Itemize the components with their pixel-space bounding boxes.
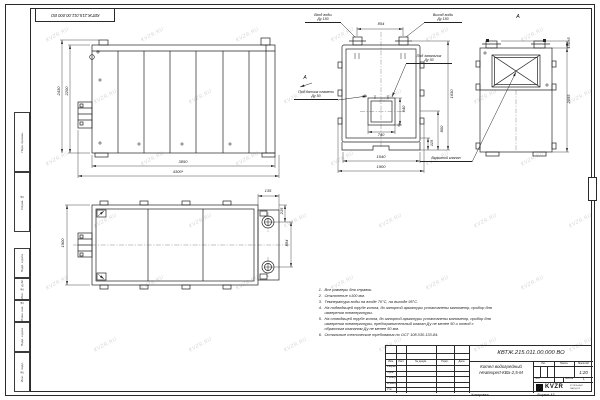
kvzr-logo: KVZR КОТЕЛЬНЫЙ ЗАВОД РФ — [536, 384, 591, 392]
margin-box-perv-primen: Перв. примен. — [14, 112, 30, 172]
format-label: Формат А3 — [518, 394, 574, 397]
outlet-label: Выход воды Ду 150 — [424, 13, 462, 23]
note-4: 4.На подводящей трубе котла, до запорной… — [315, 305, 493, 315]
dim-front-total-width: 4300* — [145, 170, 211, 174]
dim-section-opening-width: 740 — [368, 133, 394, 137]
dim-front-total-height: 2430 — [57, 76, 61, 106]
note-6: 6.Остальные технические требования по ОС… — [315, 332, 493, 337]
front-body-outline — [78, 38, 275, 157]
note-1: 1.Все размеры для справок. — [315, 287, 493, 292]
dim-section-opening-height: 540 — [402, 94, 406, 124]
note-2: 2.Отклонение ±100 мм. — [315, 293, 493, 298]
plan-centerline — [73, 212, 290, 277]
dim-section-total-width: 1900 — [366, 165, 396, 169]
dim-view-a-height: 2055 — [567, 84, 571, 114]
sheets-label: Листов — [565, 378, 573, 381]
dim-plan-pipe-spacing: 854 — [285, 228, 289, 258]
row-dev: Разраб. — [387, 366, 397, 369]
row-approve: Утв. — [387, 389, 392, 392]
flame-sensor-label: Под датчик пламени Ду 50 — [294, 90, 338, 100]
product-name: Котел водогрейный Heatexpert-КВа-2,5-М — [470, 364, 532, 376]
view-a-title: А — [511, 15, 525, 21]
margin-box-podp-data-2: Подп. и дата — [14, 322, 30, 352]
doc-number: КВТЖ.215.011.00.000 ВО — [470, 350, 592, 356]
view-a — [460, 10, 600, 180]
row-check: Пров. — [387, 372, 394, 375]
frame-mark — [588, 177, 597, 201]
note-3: 3.Температура воды на входе 70°С, на вых… — [315, 299, 493, 304]
dim-section-right-height: 1630 — [450, 79, 454, 109]
section-details — [355, 53, 405, 127]
margin-box-sprav: Справ. № — [14, 172, 30, 232]
margin-box-inv-podl: Инв. № подл. — [14, 352, 30, 392]
view-a-direction-arrow — [300, 83, 312, 87]
dim-section-800: 800 — [440, 114, 444, 144]
row-tcontr: Т.контр. — [387, 377, 397, 380]
top-stamp-number: КВТЖ.215.011.00.000 ВО — [51, 13, 100, 18]
col-date: Дата — [454, 361, 469, 364]
kvzr-logo-mark — [536, 384, 543, 391]
sheet-label: Лист — [535, 378, 540, 381]
explosion-valve-label: Взрывной клапан — [420, 156, 472, 162]
dim-plan-chamber-width: 135 — [255, 189, 281, 193]
kvzr-logo-sub2: ЗАВОД РФ — [570, 388, 580, 390]
top-stamp: КВТЖ.215.011.00.000 ВО — [35, 8, 115, 22]
col-list: Лист — [396, 361, 406, 364]
kvzr-logo-sub1: КОТЕЛЬНЫЙ — [570, 385, 583, 387]
margin-box-vzam-inv: Взам. инв. № — [14, 300, 30, 322]
dim-front-body-height: 2200 — [65, 76, 69, 106]
scale-label: Масштаб — [574, 363, 593, 366]
view-a-marks — [483, 51, 549, 87]
lit-label: Лит. — [533, 363, 554, 366]
plan-dimension-lines — [65, 194, 293, 285]
col-izm: Изм. — [386, 361, 396, 364]
dim-section-base-width: 1540 — [366, 155, 396, 159]
title-block: КВТЖ.215.011.00.000 ВО Изм. Лист № докум… — [385, 345, 592, 392]
front-dimension-lines — [60, 40, 279, 178]
dim-section-pipe-spacing: 854 — [366, 22, 396, 26]
margin-box-inv-dubl: Инв. № дубл. — [14, 278, 30, 300]
sheets-value: 1 — [583, 378, 585, 381]
copied-label: Копировал — [450, 394, 510, 397]
igniter-label: Под запальник Ду 50 — [406, 54, 452, 64]
scale-value: 1:20 — [574, 370, 593, 375]
view-a-arrow-letter: А — [300, 76, 310, 81]
row-ncontr: Н.контр. — [387, 383, 397, 386]
kvzr-logo-text: KVZR — [545, 384, 563, 390]
technical-notes: 1.Все размеры для справок. 2.Отклонение … — [315, 287, 493, 337]
margin-box-podp-data-1: Подп. и дата — [14, 248, 30, 278]
note-5: 5.На отводящей трубе котла, до запорной … — [315, 316, 493, 331]
dim-view-a-top: 150±5 — [567, 28, 571, 58]
foot-left — [95, 153, 108, 157]
front-weld-marks — [96, 50, 232, 146]
col-sign: Подп. — [436, 361, 454, 364]
plan-view — [55, 185, 305, 300]
view-a-bolts — [486, 39, 546, 42]
dim-plan-edge-offset: 215 — [280, 196, 284, 226]
mass-label: Масса — [554, 363, 574, 366]
lifting-lug-right — [261, 38, 270, 45]
inlet-label: Вход воды Ду 150 — [305, 13, 341, 23]
col-doc: № докум. — [406, 361, 436, 364]
dim-plan-depth: 1900 — [61, 228, 65, 258]
foot-right — [262, 153, 275, 157]
lifting-lug-left — [99, 40, 108, 45]
dim-section-115: 115 — [430, 128, 434, 158]
dim-front-body-width: 3850 — [150, 160, 216, 164]
